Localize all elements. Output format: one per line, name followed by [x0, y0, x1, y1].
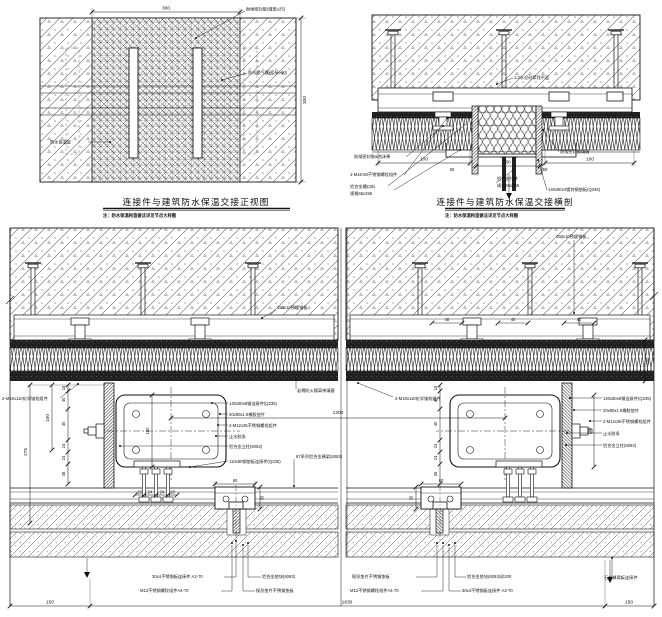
dim-seg-left: 150 [46, 600, 54, 606]
dim-100-left: 100 [420, 157, 428, 163]
label-profile-2: 规格65x255 [350, 190, 373, 197]
stone-panel [346, 532, 654, 557]
dim-50-left: 50 [450, 167, 455, 172]
label-profile-1: 铝合金槽口料 [350, 183, 376, 190]
dim-180: 180 [145, 427, 150, 435]
dim-chain-24a: 24 [61, 443, 66, 448]
waterproof-layer [372, 112, 472, 118]
foam-filler-honeycomb [478, 106, 536, 154]
dim-seg-right: 150 [625, 600, 633, 606]
cad-sheet: 300 300 耐候密封胶(缝宽≥25) 防水透气膜(搭接≥60) 防水保温层 … [0, 0, 662, 617]
dim-chain-24b: 24 [61, 455, 66, 460]
panel-b-note: 注：防水保温构造做法详见节点大样图 [445, 212, 519, 219]
dim-chain-36: 36 [433, 471, 438, 476]
dim-40a: 40 [445, 317, 450, 322]
label-ss-plate: 30x4不锈钢板连接件 A2-70 [152, 573, 203, 580]
waterproof-layer [10, 340, 338, 348]
label-chemical-anchor: 2-M16x110化学锚栓组件 [2, 395, 48, 402]
dim-chain-15: 15 [61, 385, 66, 390]
stone-panel [10, 505, 338, 529]
panel-a-front-view: 300 300 耐候密封胶(缝宽≥25) 防水透气膜(搭接≥60) 防水保温层 … [40, 6, 308, 220]
stone-panel [10, 532, 338, 557]
dim-60: 60 [439, 478, 444, 483]
dim-100: 100 [645, 357, 650, 365]
dim-chain-40b: 40 [433, 421, 438, 426]
embed-band [350, 315, 650, 340]
dim-bolt-18a: 18 [137, 490, 142, 495]
dim-50-right: 50 [543, 167, 548, 172]
dim-1630: 1630 [342, 600, 353, 606]
dim-bolt-18b: 18 [170, 490, 175, 495]
label-plate-right: 140x80x4镀锌钢垫板(Q345) [548, 186, 601, 193]
panel-b-section: 100 100 80 50 50 1:3水泥砂浆找平层 耐候密封胶&泡沫棒 1-… [350, 15, 640, 219]
dim-40c: 40 [577, 317, 582, 322]
panel-b-title: 连接件与建筑防水保温交接横剖 [436, 196, 573, 207]
label-waterstop: 止水胶条 [229, 433, 247, 440]
label-seal-right: 耐候密封胶填缝 [560, 148, 590, 155]
slot-left [129, 48, 138, 158]
label-waterstop: 止水胶条 [603, 430, 621, 437]
dim-100: 100 [45, 414, 51, 422]
label-bracket-1: 铝合金托件 [497, 175, 518, 182]
rockwool-insulation [10, 348, 338, 371]
label-wedge-shim: 楔形垫片不锈钢垫板 [256, 587, 295, 594]
dim-chain-40a: 40 [433, 397, 438, 402]
dim-300-right: 300 [302, 96, 308, 104]
label-mullion: 铝合金立柱(6063) [603, 442, 637, 449]
label-connector: 140x80x6钢连接件(Q235) [603, 395, 652, 402]
panel-a-title: 连接件与建筑防水保温交接正视图 [123, 196, 270, 207]
label-wedge-shim: 楔形垫片不锈钢垫板 [352, 573, 391, 580]
label-alu-block: 铝合金垫块(6063) [262, 573, 296, 580]
dim-chain-15: 15 [433, 385, 438, 390]
embed-band [14, 315, 334, 340]
dim-chain-40b: 40 [61, 421, 66, 426]
label-mortar: 1:3水泥砂浆找平层 [514, 74, 549, 81]
dim-chain-24b: 24 [433, 455, 438, 460]
label-alu-block: 铝合金垫块(6063)@200 [467, 573, 512, 580]
label-connector: 140x80x6钢连接件(Q235) [229, 400, 278, 407]
label-beam: 87系列铝合金横梁(6063) [296, 453, 343, 460]
label-embed-plate: 150x10预埋钢板 [556, 233, 587, 240]
dim-100-right: 100 [586, 157, 594, 163]
label-membrane: 防水透气膜(搭接≥60) [248, 69, 288, 76]
dim-chain-40a: 40 [61, 397, 66, 402]
panel-a-note: 注：防水保温构造做法详见节点大样图 [103, 212, 177, 219]
slot-right [193, 48, 202, 158]
label-firestop: 岩棉防火隔离带填塞 [297, 387, 336, 394]
dim-1200: 1200 [333, 410, 344, 416]
label-embed-plate: 150x10预埋钢板 [277, 304, 308, 311]
label-gasket: 20x80x1.5橡胶垫片 [603, 407, 639, 414]
waterproof-layer-2 [10, 371, 338, 381]
dim-80: 80 [505, 160, 511, 166]
dim-60: 60 [233, 478, 238, 483]
label-ss-plate: 30x4不锈钢板连接件 A2-70 [462, 587, 513, 594]
label-ss-bolt: M12不锈钢螺栓组件A4-70 [350, 587, 399, 594]
dim-40b: 40 [511, 317, 516, 322]
waterproof-layer-2 [346, 371, 654, 381]
drawing-canvas: 300 300 耐候密封胶(缝宽≥25) 防水透气膜(搭接≥60) 防水保温层 … [0, 0, 662, 617]
section-right [341, 228, 658, 606]
waterproof-layer [346, 340, 654, 348]
dim-35: 35 [409, 495, 414, 500]
label-backing-plate: 110x80钢垫板连接件(Q235) [229, 458, 281, 465]
label-bolt: 1-M16-60不锈钢螺栓组件 [350, 171, 397, 178]
dim-bolt-24b: 24 [160, 490, 165, 495]
dim-180: 180 [587, 427, 592, 435]
insulation-mesh-band [92, 18, 240, 182]
label-sealant: 耐候密封胶(缝宽≥25) [246, 6, 286, 13]
label-gasket: 20x80x1.5橡胶垫片 [229, 411, 265, 418]
label-bolt-set: 2-M12x35不锈钢螺栓组件 [229, 422, 277, 429]
rockwool-insulation [346, 348, 654, 371]
dim-chain-36: 36 [61, 471, 66, 476]
label-ss-bolt: M12不锈钢螺栓组件A4-70 [140, 587, 189, 594]
label-bracket-2: 规格65x255 [497, 182, 520, 189]
label-bolt-set: 2-M12x35不锈钢螺栓组件 [603, 418, 651, 425]
dim-300-top: 300 [162, 6, 170, 12]
stone-panel [346, 505, 654, 529]
dim-35: 35 [260, 495, 265, 500]
dim-275: 275 [23, 448, 29, 456]
label-wall: 防水保温层 [50, 139, 71, 146]
label-seal-left: 耐候密封胶&泡沫棒 [354, 153, 391, 160]
dim-chain-24a: 24 [433, 443, 438, 448]
dim-bolt-24a: 24 [148, 490, 153, 495]
rockwool-insulation [372, 118, 472, 150]
label-mullion: 铝合金立柱(6063) [229, 443, 263, 450]
